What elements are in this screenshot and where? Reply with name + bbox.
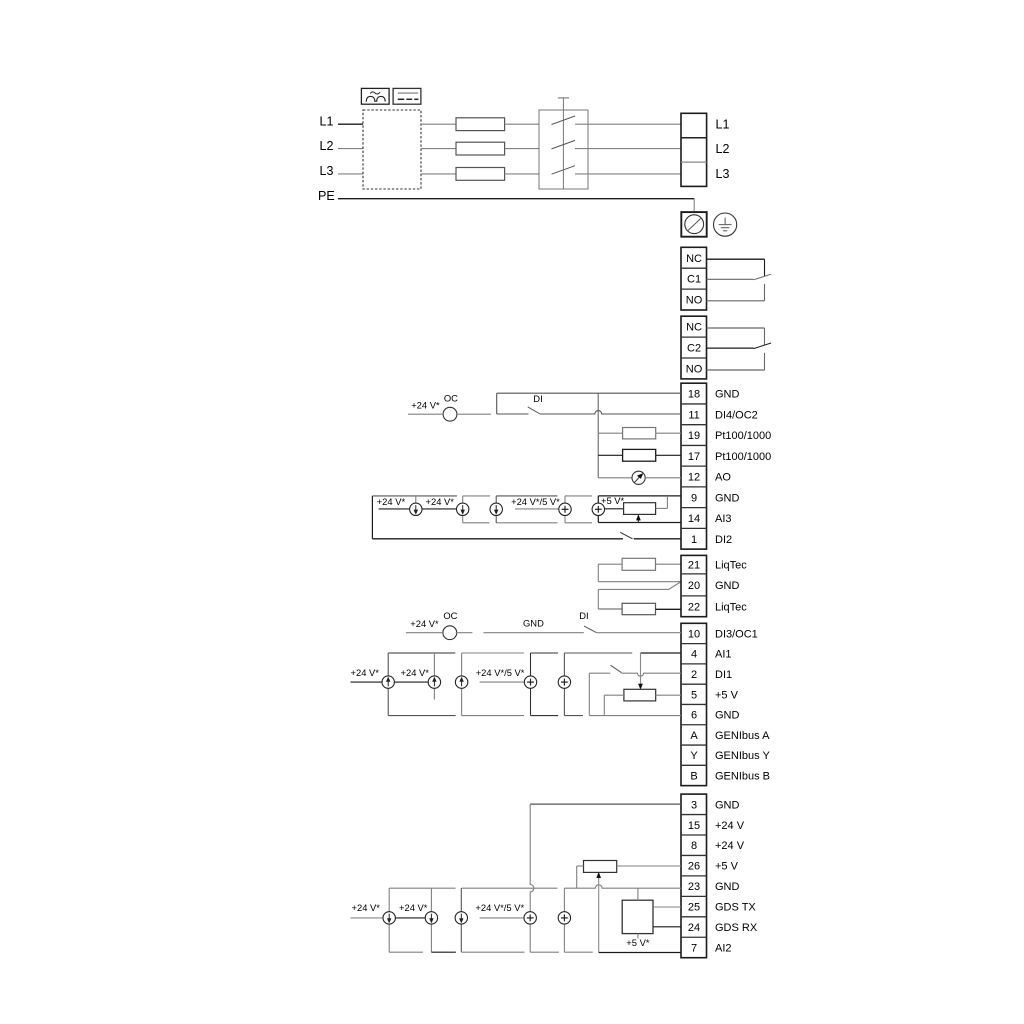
svg-text:4: 4 <box>691 649 697 661</box>
svg-text:22: 22 <box>688 601 700 613</box>
svg-text:L1: L1 <box>716 118 730 132</box>
svg-text:NC: NC <box>686 322 702 334</box>
svg-text:3: 3 <box>691 799 697 811</box>
svg-text:AI2: AI2 <box>715 942 732 954</box>
svg-text:AI3: AI3 <box>715 513 732 525</box>
svg-text:Pt100/1000: Pt100/1000 <box>715 451 771 463</box>
svg-text:23: 23 <box>688 881 700 893</box>
svg-text:+24 V*: +24 V* <box>352 902 381 913</box>
svg-text:1: 1 <box>691 534 697 546</box>
svg-text:+24 V*: +24 V* <box>410 618 439 629</box>
svg-text:DI: DI <box>533 393 542 404</box>
svg-text:DI2: DI2 <box>715 534 732 546</box>
svg-text:+5 V: +5 V <box>715 689 739 701</box>
svg-text:+24 V*: +24 V* <box>351 667 380 678</box>
svg-text:C1: C1 <box>687 274 701 286</box>
svg-text:+5 V: +5 V <box>715 861 739 873</box>
svg-text:19: 19 <box>688 430 700 442</box>
svg-text:26: 26 <box>688 861 700 873</box>
svg-text:GDS RX: GDS RX <box>715 922 758 934</box>
svg-text:+24 V: +24 V <box>715 840 745 852</box>
svg-text:DI: DI <box>579 610 588 621</box>
svg-text:L3: L3 <box>716 167 730 181</box>
svg-text:Pt100/1000: Pt100/1000 <box>715 430 771 442</box>
svg-text:PE: PE <box>318 189 335 203</box>
svg-text:6: 6 <box>691 710 697 722</box>
svg-text:+24 V*: +24 V* <box>377 496 406 507</box>
svg-text:21: 21 <box>688 560 700 572</box>
svg-text:24: 24 <box>688 922 700 934</box>
svg-text:AO: AO <box>715 472 731 484</box>
svg-text:+5 V*: +5 V* <box>626 937 650 948</box>
svg-text:17: 17 <box>688 451 700 463</box>
svg-text:+24 V*/5 V*: +24 V*/5 V* <box>475 902 524 913</box>
svg-text:GND: GND <box>715 881 740 893</box>
svg-text:L1: L1 <box>320 115 334 129</box>
svg-text:9: 9 <box>691 492 697 504</box>
svg-text:7: 7 <box>691 942 697 954</box>
svg-text:+24 V: +24 V <box>715 820 745 832</box>
svg-text:L2: L2 <box>320 139 334 153</box>
svg-text:GND: GND <box>715 492 740 504</box>
svg-text:L3: L3 <box>320 164 334 178</box>
svg-text:14: 14 <box>688 513 700 525</box>
svg-text:DI4/OC2: DI4/OC2 <box>715 409 758 421</box>
svg-text:15: 15 <box>688 820 700 832</box>
svg-text:+24 V*: +24 V* <box>399 902 428 913</box>
svg-text:20: 20 <box>688 580 700 592</box>
svg-text:GND: GND <box>715 389 740 401</box>
svg-text:DI1: DI1 <box>715 669 732 681</box>
svg-text:GND: GND <box>715 710 740 722</box>
svg-text:GND: GND <box>715 580 740 592</box>
svg-text:+24 V*/5 V*: +24 V*/5 V* <box>476 667 525 678</box>
svg-text:GENIbus B: GENIbus B <box>715 770 770 782</box>
svg-text:GND: GND <box>523 618 544 629</box>
svg-text:+24 V*/5 V*: +24 V*/5 V* <box>511 496 560 507</box>
svg-text:GENIbus A: GENIbus A <box>715 730 770 742</box>
svg-text:OC: OC <box>444 393 458 404</box>
svg-text:DI3/OC1: DI3/OC1 <box>715 628 758 640</box>
svg-text:C2: C2 <box>687 343 701 355</box>
svg-text:+5 V*: +5 V* <box>601 495 625 506</box>
svg-text:L2: L2 <box>716 142 730 156</box>
svg-text:Y: Y <box>690 750 698 762</box>
svg-text:GND: GND <box>715 799 740 811</box>
svg-text:GDS TX: GDS TX <box>715 902 756 914</box>
svg-text:12: 12 <box>688 472 700 484</box>
svg-text:LiqTec: LiqTec <box>715 560 747 572</box>
svg-text:NO: NO <box>686 363 703 375</box>
svg-text:B: B <box>690 770 697 782</box>
svg-text:2: 2 <box>691 669 697 681</box>
svg-text:11: 11 <box>688 409 699 421</box>
svg-text:OC: OC <box>443 610 457 621</box>
svg-text:A: A <box>690 730 698 742</box>
svg-text:NC: NC <box>686 253 702 265</box>
svg-text:5: 5 <box>691 689 697 701</box>
svg-text:25: 25 <box>688 902 700 914</box>
svg-text:+24 V*: +24 V* <box>426 496 455 507</box>
svg-text:8: 8 <box>691 840 697 852</box>
svg-text:+24 V*: +24 V* <box>401 667 430 678</box>
svg-text:18: 18 <box>688 389 700 401</box>
svg-text:AI1: AI1 <box>715 649 732 661</box>
svg-text:+24 V*: +24 V* <box>411 400 440 411</box>
svg-text:GENIbus Y: GENIbus Y <box>715 750 770 762</box>
svg-text:NO: NO <box>686 295 703 307</box>
svg-text:LiqTec: LiqTec <box>715 601 747 613</box>
svg-text:10: 10 <box>688 628 700 640</box>
